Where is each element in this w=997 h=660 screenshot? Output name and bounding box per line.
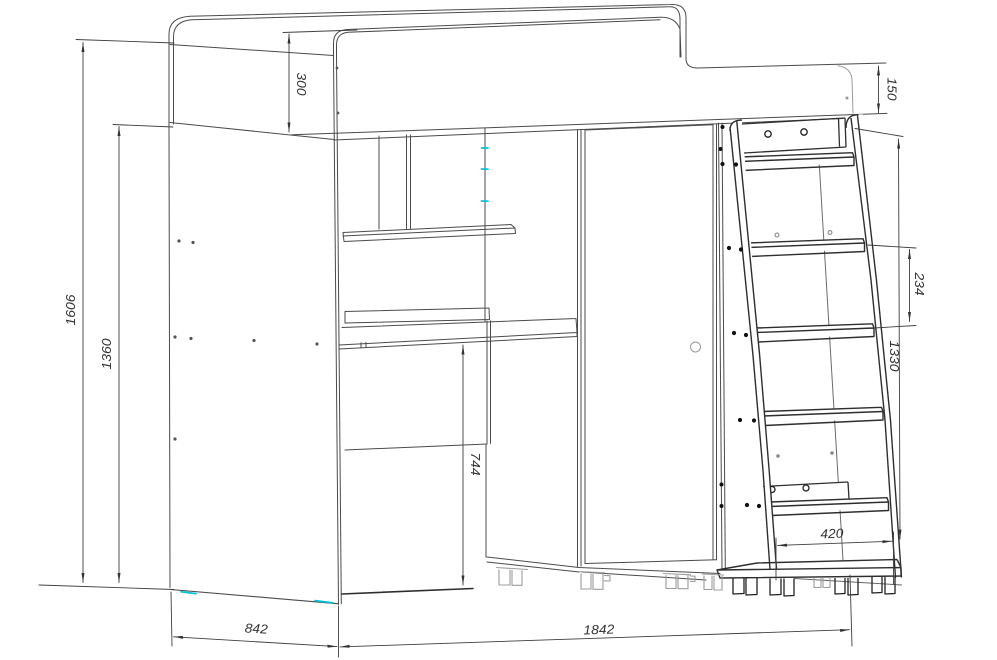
svg-text:300: 300 [294, 73, 309, 97]
svg-text:420: 420 [820, 526, 844, 542]
svg-text:234: 234 [912, 271, 927, 295]
svg-text:842: 842 [244, 620, 269, 636]
svg-text:1606: 1606 [63, 294, 78, 326]
svg-text:150: 150 [885, 78, 900, 102]
svg-text:1330: 1330 [887, 341, 902, 373]
svg-text:1360: 1360 [99, 338, 114, 370]
svg-text:744: 744 [468, 453, 483, 476]
svg-text:1842: 1842 [583, 621, 615, 637]
